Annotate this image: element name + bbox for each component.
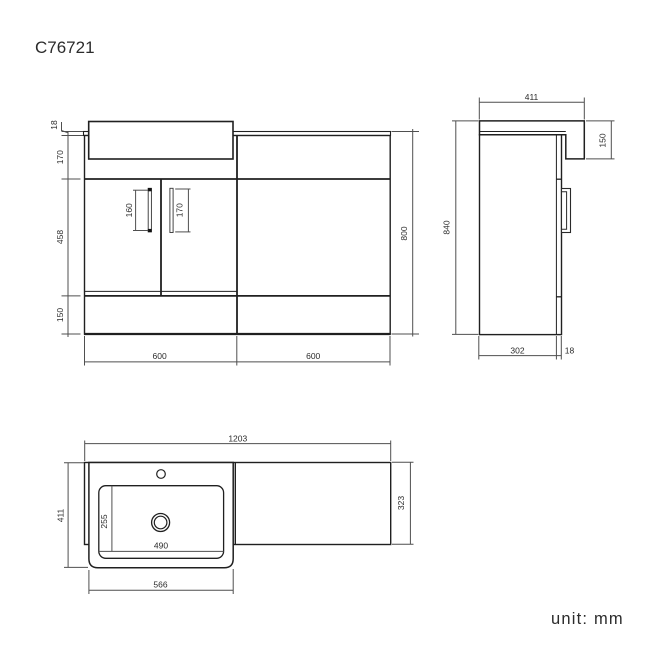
svg-text:566: 566 — [153, 579, 167, 589]
svg-text:C76721: C76721 — [35, 38, 95, 57]
svg-text:18: 18 — [565, 345, 575, 355]
svg-text:unit: mm: unit: mm — [551, 610, 624, 628]
svg-text:255: 255 — [99, 514, 109, 528]
svg-text:411: 411 — [56, 508, 66, 522]
svg-text:411: 411 — [525, 92, 539, 102]
svg-text:18: 18 — [49, 120, 59, 130]
svg-text:840: 840 — [442, 220, 452, 234]
svg-text:160: 160 — [124, 203, 134, 217]
svg-text:1203: 1203 — [228, 433, 247, 443]
svg-text:150: 150 — [597, 133, 607, 147]
svg-text:800: 800 — [399, 226, 409, 240]
svg-text:170: 170 — [174, 203, 184, 217]
svg-text:170: 170 — [55, 150, 65, 164]
svg-text:600: 600 — [306, 351, 320, 361]
svg-text:490: 490 — [154, 541, 168, 551]
svg-text:458: 458 — [55, 230, 65, 244]
svg-text:323: 323 — [396, 496, 406, 510]
svg-text:302: 302 — [510, 345, 524, 355]
svg-text:600: 600 — [153, 351, 167, 361]
svg-text:150: 150 — [55, 308, 65, 322]
